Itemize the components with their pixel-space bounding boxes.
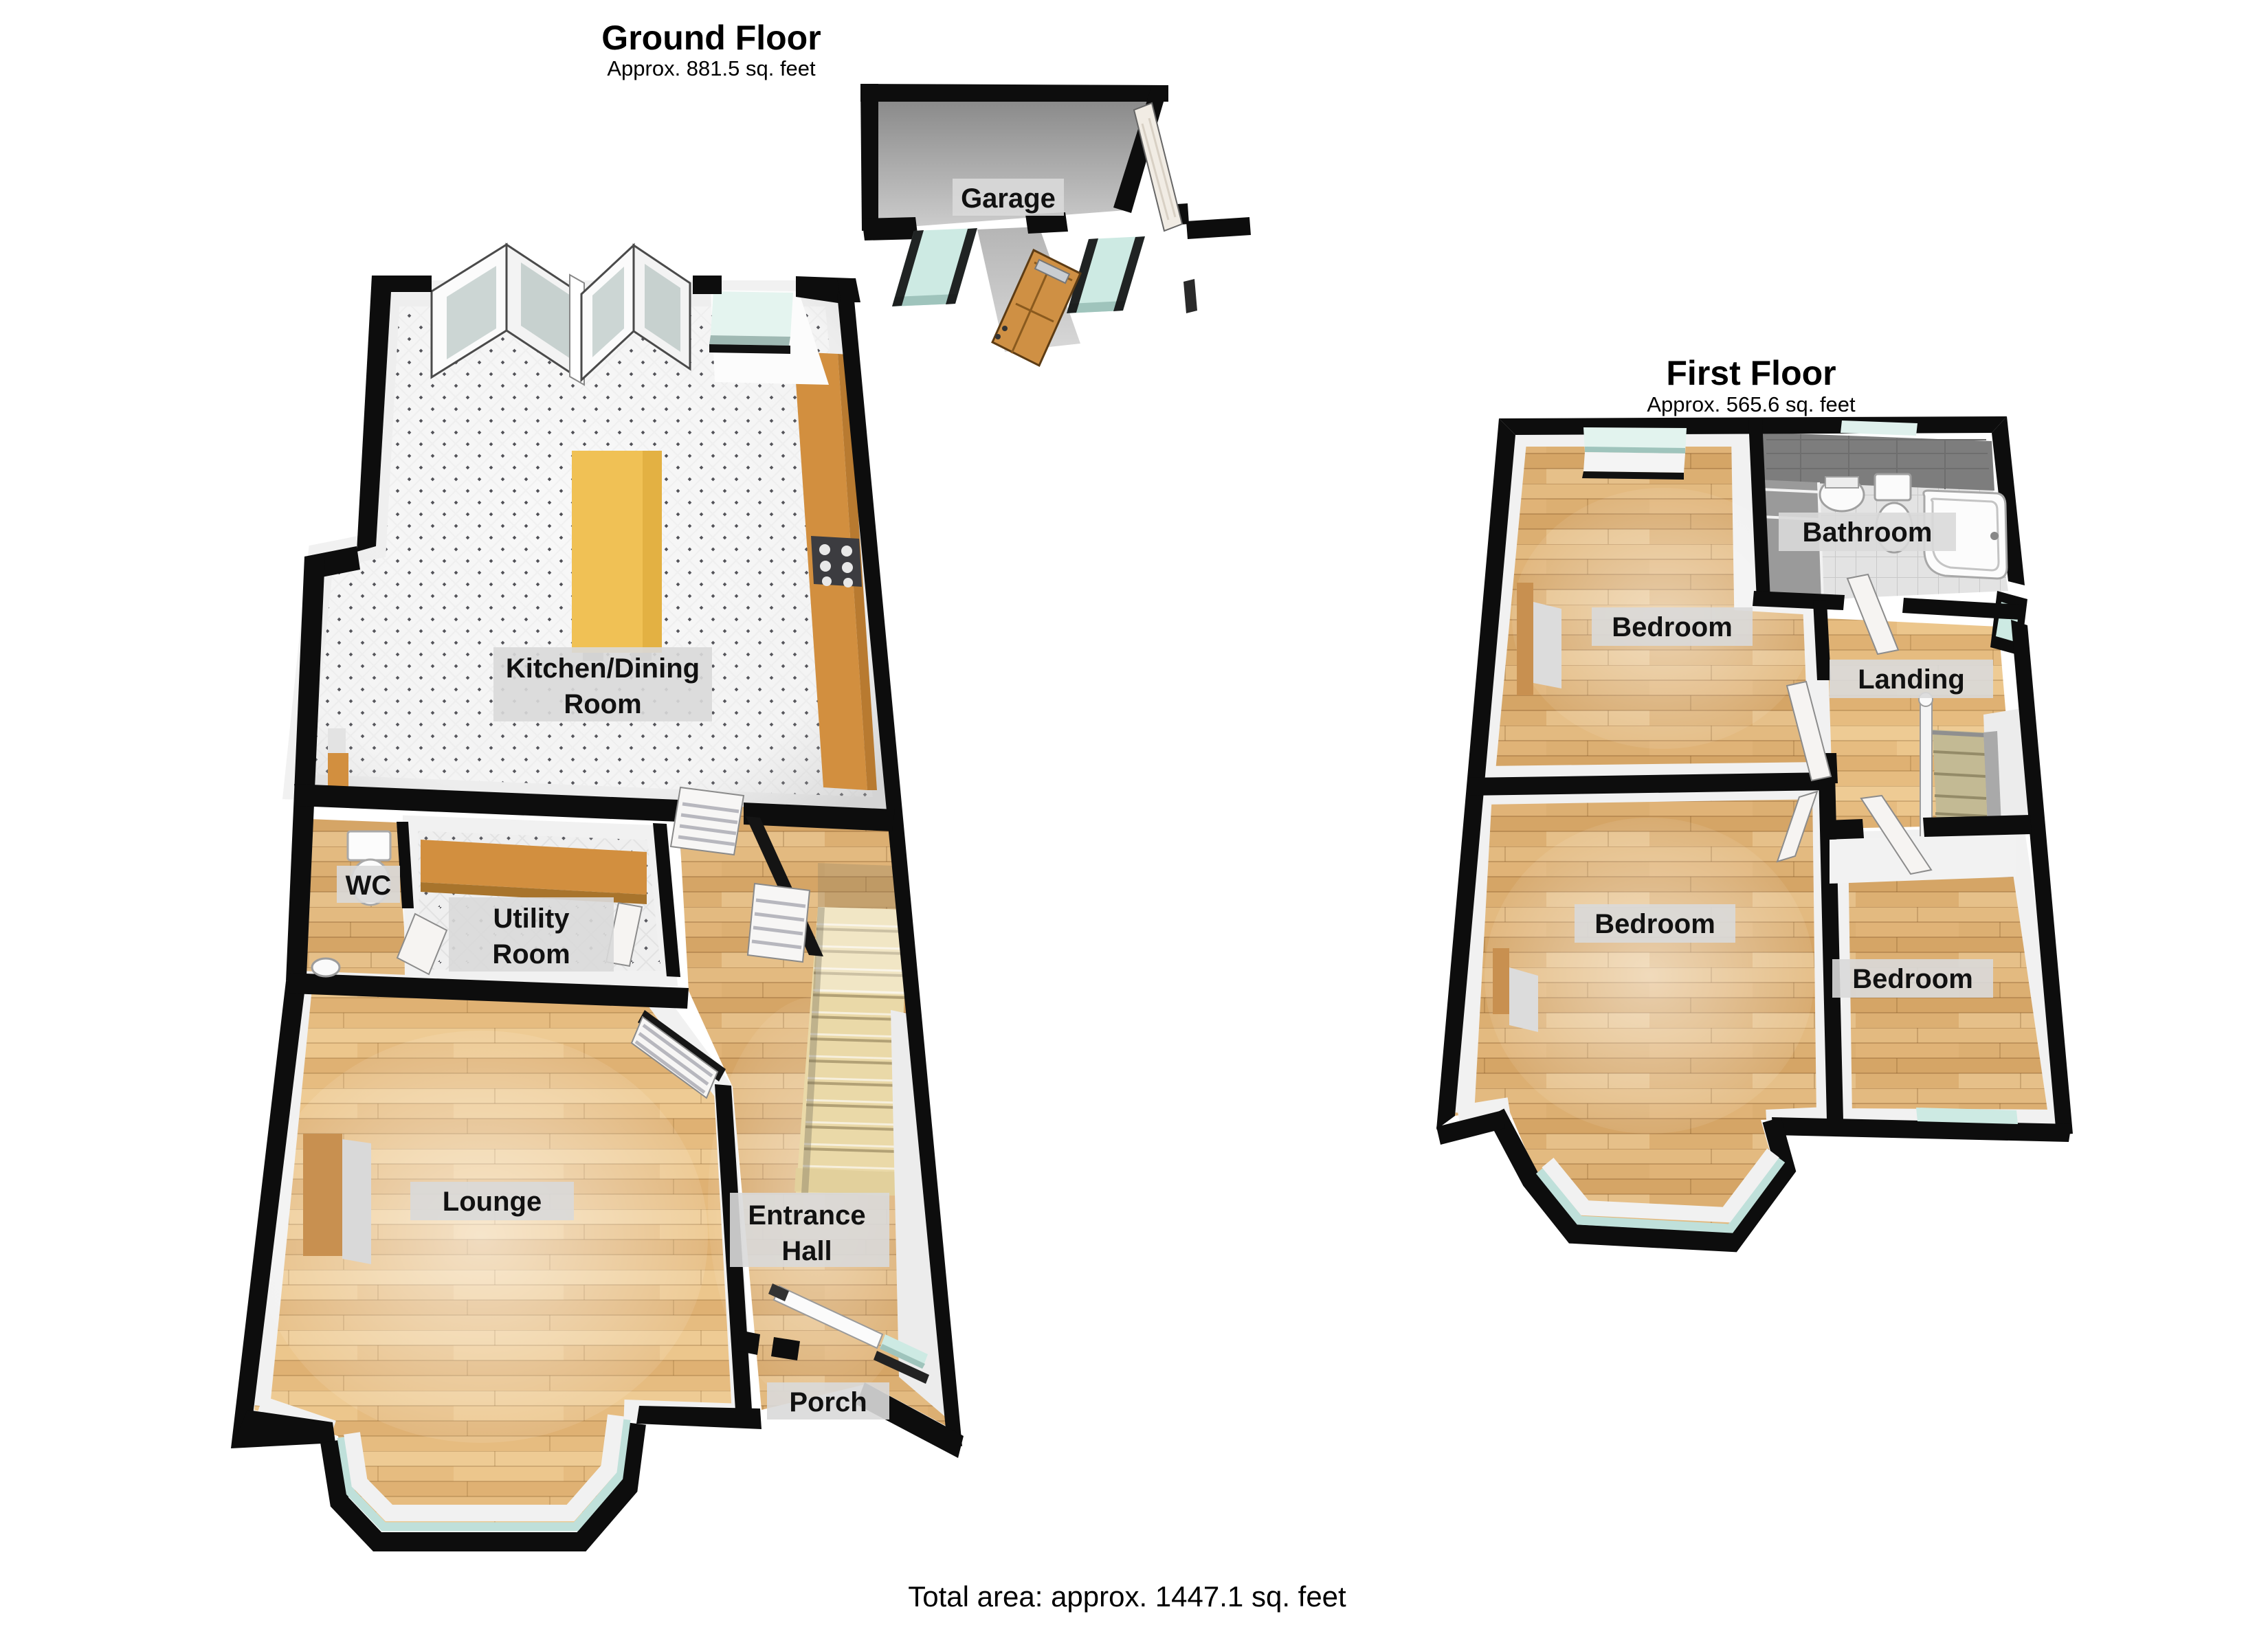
svg-text:First Floor: First Floor xyxy=(1666,354,1836,392)
svg-text:Room: Room xyxy=(564,689,641,719)
svg-text:Landing: Landing xyxy=(1858,664,1965,695)
svg-text:Kitchen/Dining: Kitchen/Dining xyxy=(506,653,700,684)
svg-text:Entrance: Entrance xyxy=(748,1200,865,1231)
svg-text:WC: WC xyxy=(346,871,392,901)
svg-text:Garage: Garage xyxy=(961,183,1056,214)
svg-text:Total area: approx. 1447.1 sq.: Total area: approx. 1447.1 sq. feet xyxy=(908,1580,1346,1613)
svg-text:Bedroom: Bedroom xyxy=(1612,612,1733,642)
svg-text:Porch: Porch xyxy=(789,1387,867,1417)
svg-text:Bathroom: Bathroom xyxy=(1803,517,1933,548)
svg-text:Lounge: Lounge xyxy=(443,1187,542,1217)
svg-text:Utility: Utility xyxy=(493,904,570,934)
svg-text:Bedroom: Bedroom xyxy=(1852,964,1973,994)
svg-text:Room: Room xyxy=(492,939,570,969)
svg-text:Bedroom: Bedroom xyxy=(1594,909,1715,939)
svg-text:Hall: Hall xyxy=(781,1236,832,1266)
svg-text:Approx. 881.5 sq. feet: Approx. 881.5 sq. feet xyxy=(607,56,816,80)
svg-text:Ground Floor: Ground Floor xyxy=(601,19,821,57)
svg-text:Approx. 565.6 sq. feet: Approx. 565.6 sq. feet xyxy=(1647,392,1856,416)
